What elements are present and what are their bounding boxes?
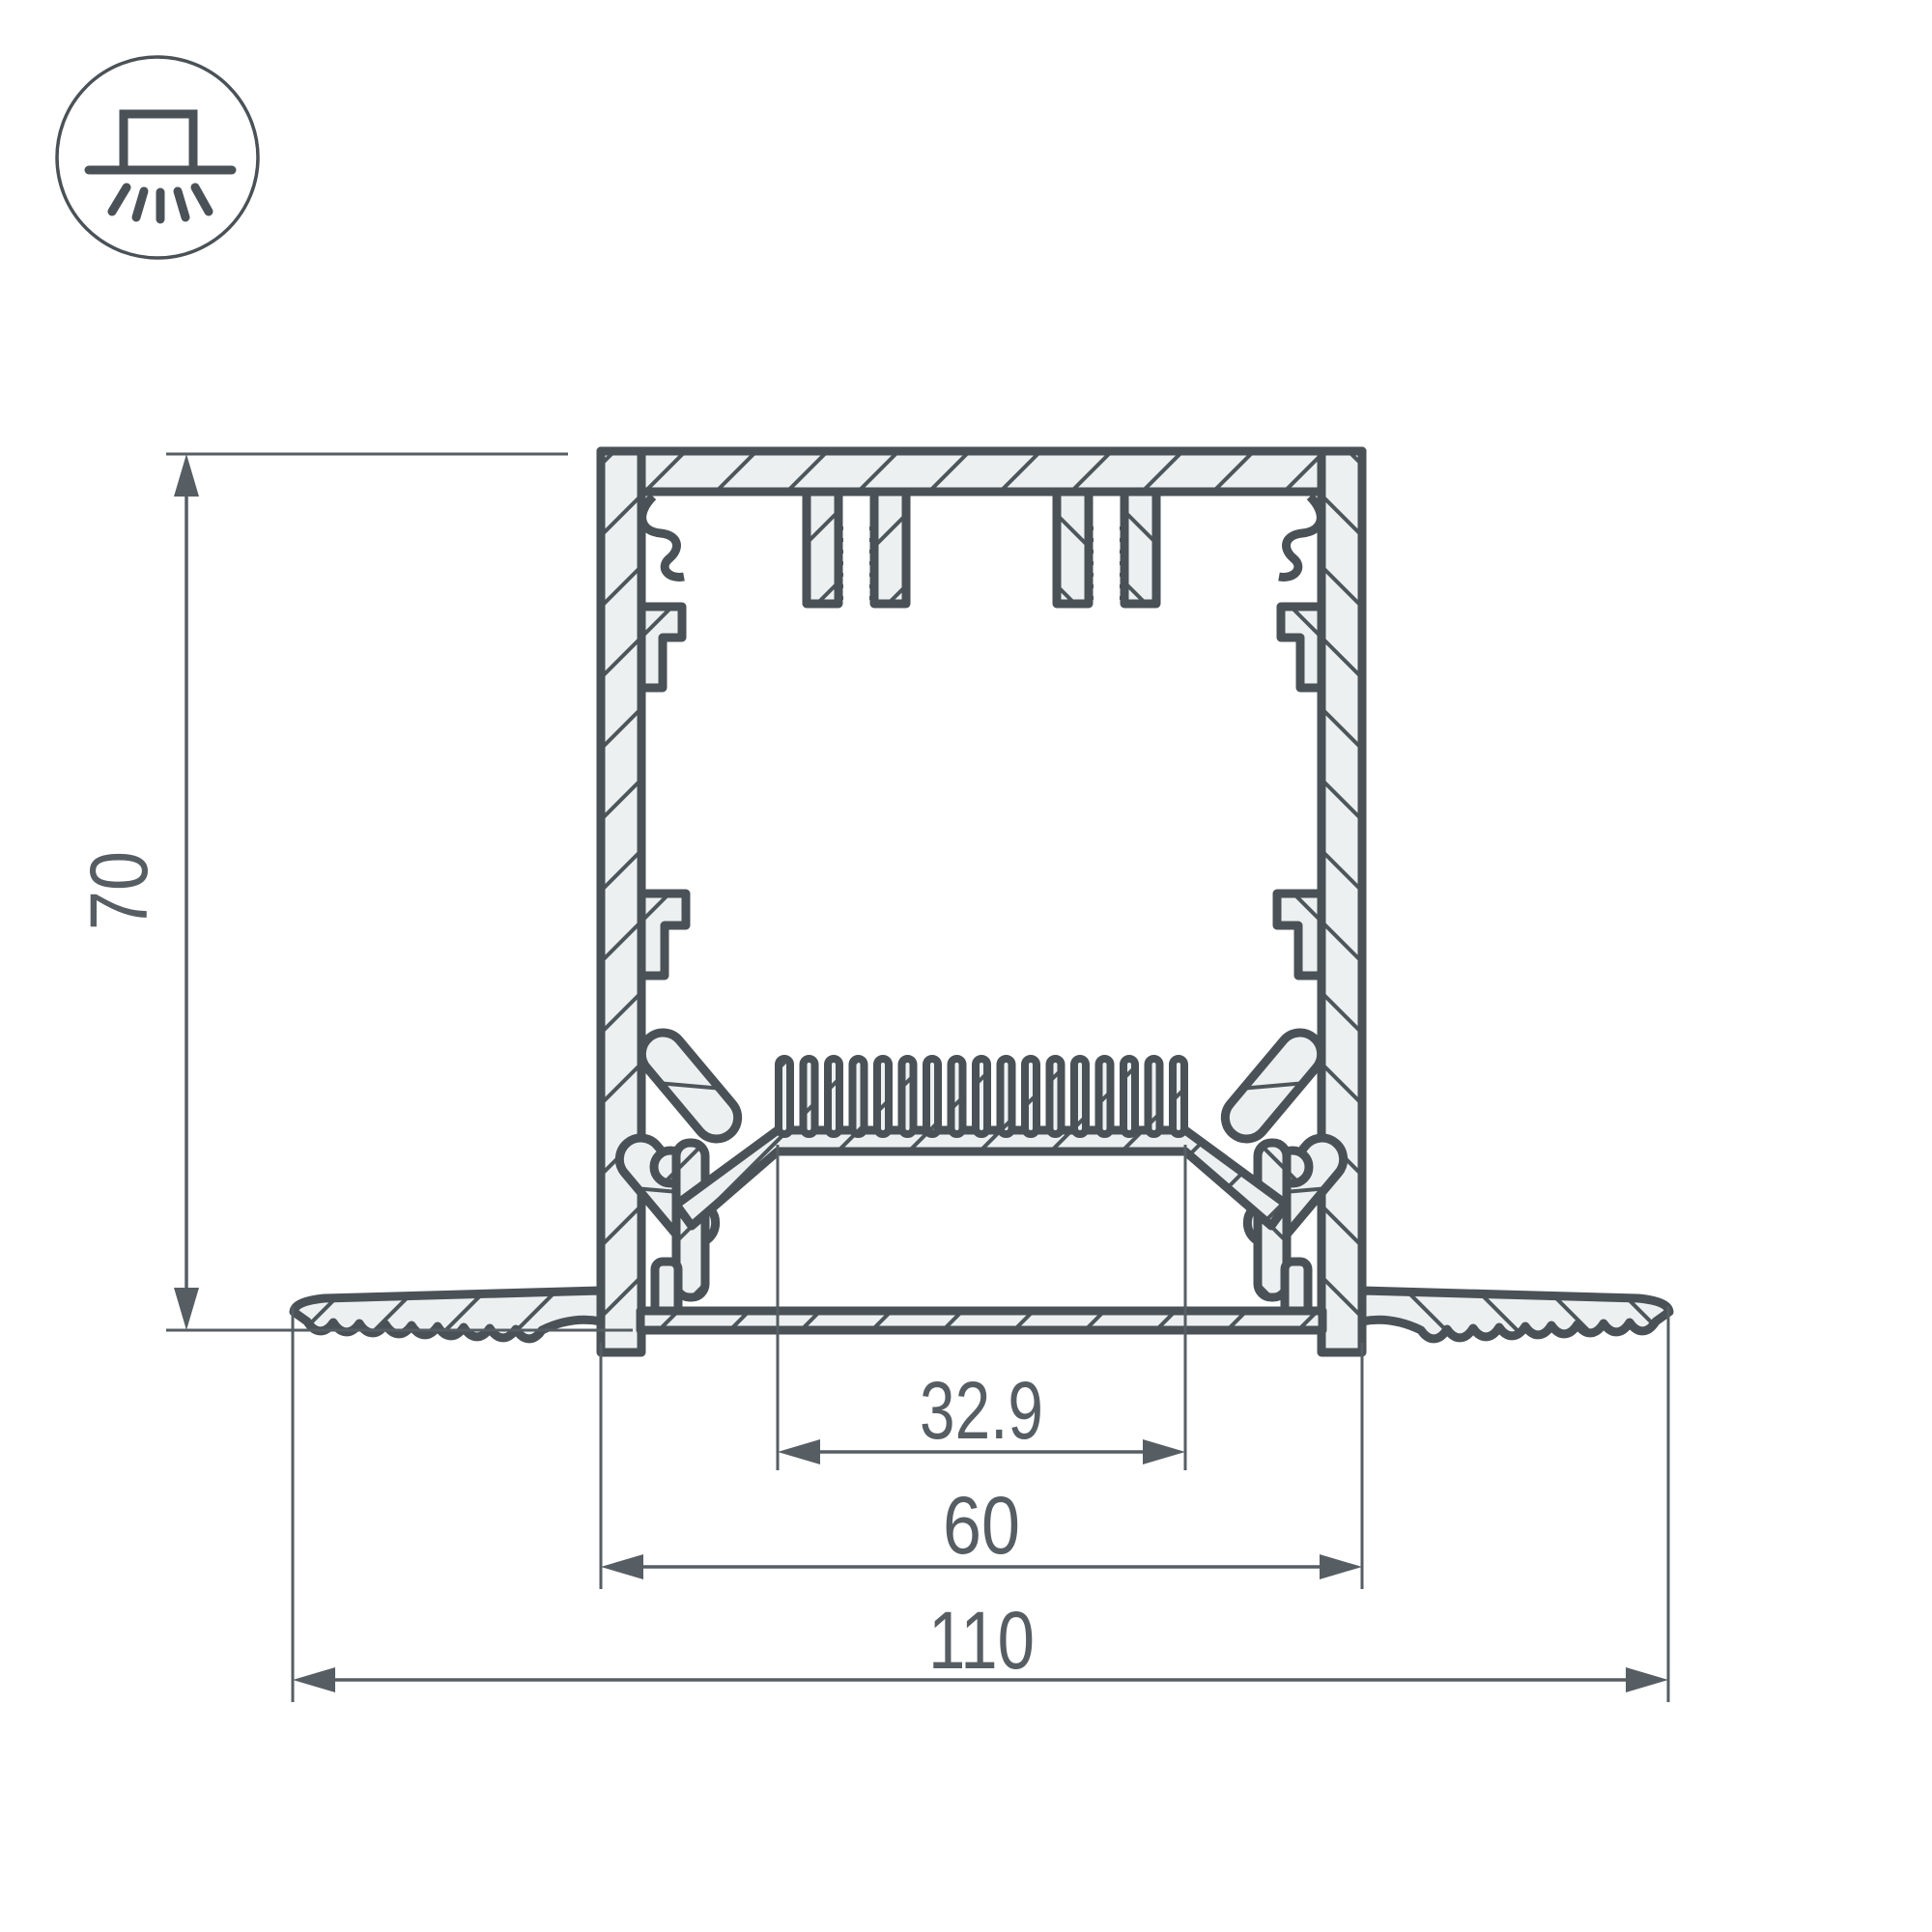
body-width-dimension-label: 60 (943, 1480, 1020, 1571)
screw-boss-tab (874, 492, 906, 604)
overall-width-dimension-label: 110 (928, 1595, 1035, 1686)
profile-side-wall (601, 451, 641, 1352)
technical-drawing-page: 70 32.9 60 110 (0, 0, 1932, 1932)
bottom-cover-plate (640, 1311, 1322, 1330)
heatsink-fins (779, 1059, 1184, 1134)
screw-boss-tab (807, 492, 838, 604)
profile-top-wall (601, 451, 1362, 492)
profile-drawing: 70 32.9 60 110 (0, 0, 1932, 1932)
inner-width-dimension-label: 32.9 (920, 1365, 1043, 1456)
height-dimension-label: 70 (73, 851, 164, 930)
